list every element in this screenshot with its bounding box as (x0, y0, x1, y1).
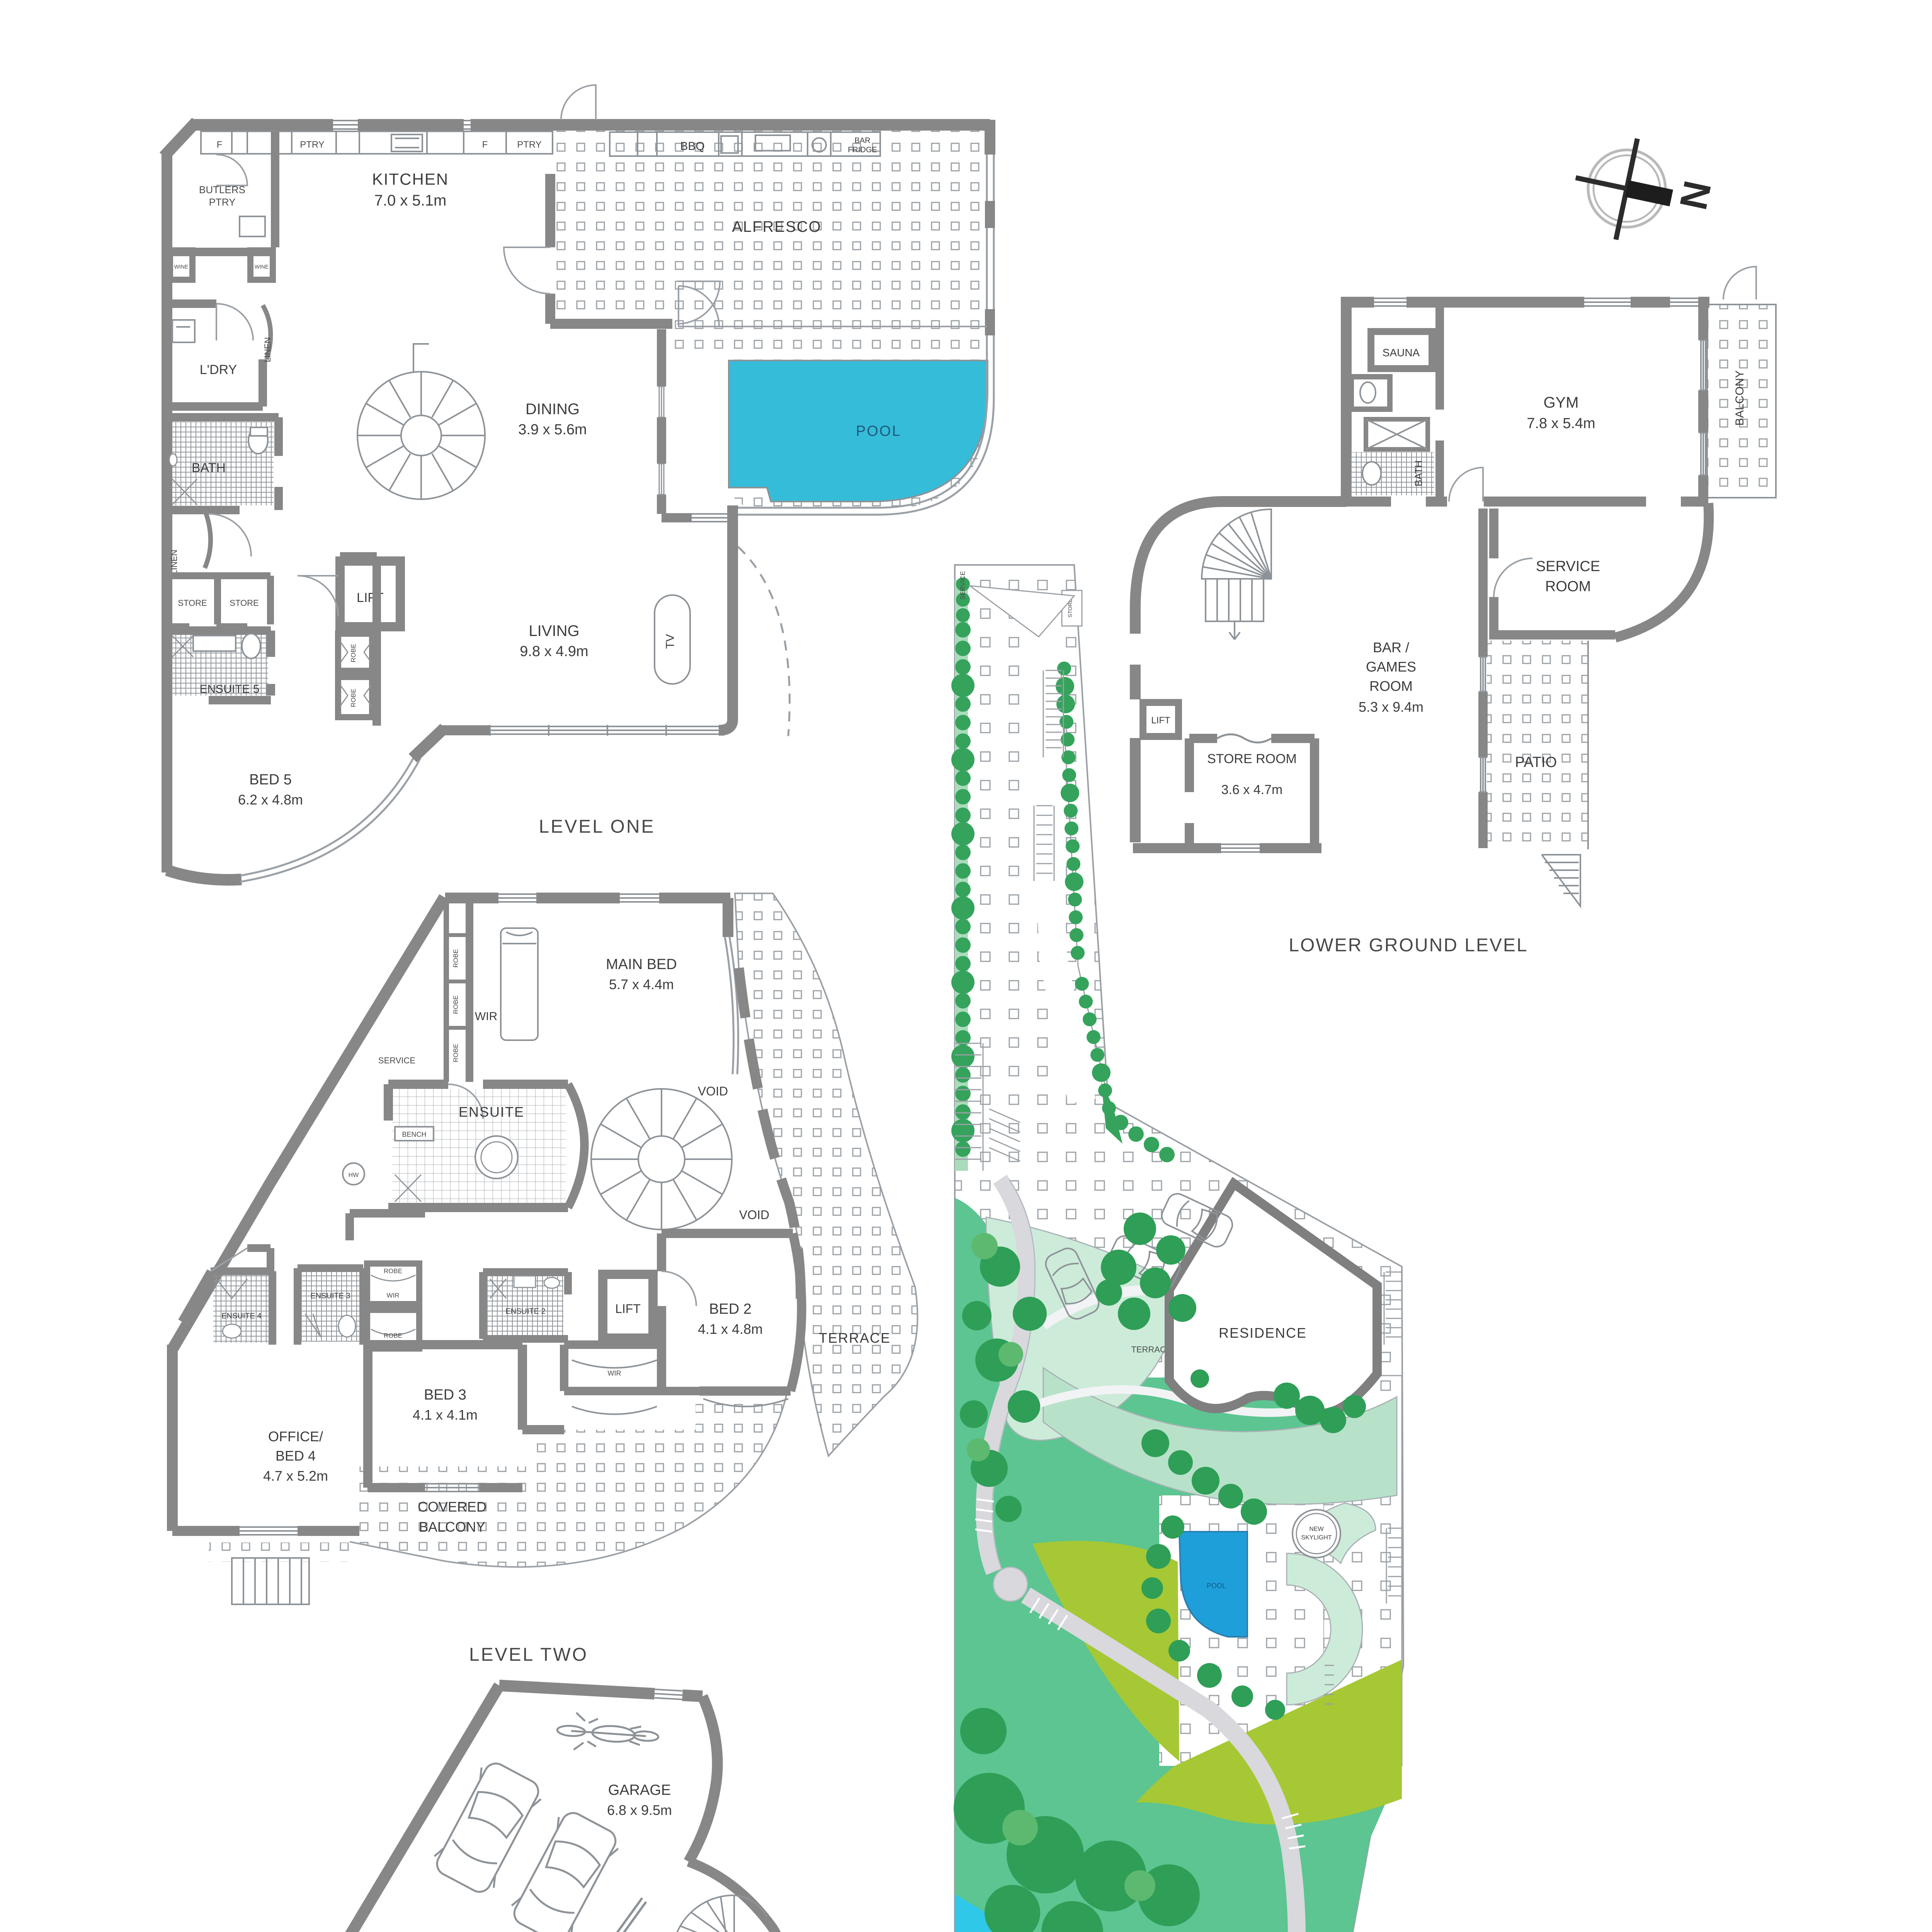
svg-text:TERRACE: TERRACE (819, 1330, 891, 1346)
svg-text:LIFT: LIFT (1151, 715, 1170, 726)
svg-text:BED 5: BED 5 (249, 772, 292, 788)
svg-text:6.8 x 9.5m: 6.8 x 9.5m (607, 1802, 672, 1818)
svg-text:STORE: STORE (178, 598, 207, 608)
svg-text:LIFT: LIFT (615, 1302, 641, 1316)
svg-text:LOWER GROUND LEVEL: LOWER GROUND LEVEL (1289, 935, 1528, 956)
svg-text:WIR: WIR (608, 1369, 621, 1377)
svg-text:BED 4: BED 4 (276, 1448, 316, 1464)
svg-text:WIR: WIR (475, 1010, 497, 1023)
svg-text:ROBE: ROBE (350, 644, 357, 662)
svg-text:6.2 x 4.8m: 6.2 x 4.8m (238, 792, 303, 808)
svg-text:BED 3: BED 3 (424, 1387, 466, 1403)
svg-text:ENSUITE: ENSUITE (459, 1104, 524, 1120)
svg-text:4.1 x 4.8m: 4.1 x 4.8m (698, 1321, 763, 1337)
svg-text:ROOM: ROOM (1369, 678, 1413, 694)
svg-text:RESIDENCE: RESIDENCE (1219, 1325, 1307, 1341)
svg-text:7.8 x 5.4m: 7.8 x 5.4m (1527, 415, 1595, 432)
svg-text:VOID: VOID (698, 1084, 728, 1098)
svg-text:ENSUITE 3: ENSUITE 3 (310, 1292, 350, 1300)
svg-text:STORE ROOM: STORE ROOM (1207, 752, 1297, 766)
svg-text:NEW: NEW (1309, 1526, 1324, 1532)
svg-text:ROBE: ROBE (384, 1267, 402, 1275)
svg-text:POOL: POOL (1207, 1582, 1226, 1590)
svg-text:KITCHEN: KITCHEN (372, 170, 449, 188)
svg-text:ENSUITE 4: ENSUITE 4 (221, 1312, 261, 1320)
svg-text:ROOM: ROOM (1545, 578, 1591, 595)
svg-text:ROBE: ROBE (350, 689, 357, 707)
svg-text:BAR: BAR (854, 136, 870, 145)
svg-text:TV: TV (664, 634, 677, 649)
svg-text:BBQ: BBQ (680, 140, 704, 153)
svg-text:SERVICE: SERVICE (959, 571, 966, 600)
svg-text:BENCH: BENCH (402, 1131, 426, 1138)
svg-text:5.7 x 4.4m: 5.7 x 4.4m (609, 976, 674, 992)
svg-text:ROBE: ROBE (452, 995, 459, 1014)
svg-text:F: F (482, 139, 488, 150)
svg-text:GAMES: GAMES (1366, 659, 1416, 675)
svg-text:ROBE: ROBE (452, 1044, 459, 1062)
svg-text:4.7 x 5.2m: 4.7 x 5.2m (263, 1468, 328, 1484)
svg-text:MAIN BED: MAIN BED (606, 956, 677, 973)
svg-text:VOID: VOID (739, 1208, 769, 1222)
svg-text:HW: HW (349, 1172, 359, 1179)
svg-text:5.3 x 9.4m: 5.3 x 9.4m (1359, 699, 1423, 715)
svg-text:LIVING: LIVING (529, 622, 579, 639)
svg-text:LEVEL ONE: LEVEL ONE (539, 816, 655, 837)
svg-text:ROBE: ROBE (384, 1332, 402, 1339)
svg-text:ENSUITE 2: ENSUITE 2 (505, 1307, 545, 1316)
svg-text:LEVEL TWO: LEVEL TWO (469, 1645, 588, 1665)
svg-text:POOL: POOL (856, 423, 901, 439)
svg-text:PTRY: PTRY (209, 196, 236, 208)
svg-text:PATIO: PATIO (1515, 754, 1557, 770)
svg-text:BED 2: BED 2 (709, 1301, 752, 1317)
svg-text:L'DRY: L'DRY (200, 362, 237, 377)
svg-text:BATH: BATH (1413, 460, 1424, 486)
svg-text:BAR /: BAR / (1373, 639, 1409, 655)
svg-text:SERVICE: SERVICE (378, 1056, 415, 1065)
svg-text:3.6 x 4.7m: 3.6 x 4.7m (1221, 782, 1283, 797)
svg-text:PTRY: PTRY (517, 139, 542, 150)
svg-text:ALFRESCO: ALFRESCO (732, 218, 821, 235)
svg-text:WIR: WIR (386, 1292, 399, 1299)
svg-text:GARAGE: GARAGE (608, 1782, 671, 1798)
svg-text:COVERED: COVERED (418, 1499, 486, 1515)
svg-text:SAUNA: SAUNA (1383, 347, 1420, 359)
svg-text:SERVICE: SERVICE (1536, 558, 1600, 575)
svg-text:ENSUITE 5: ENSUITE 5 (199, 683, 259, 696)
svg-text:OFFICE/: OFFICE/ (268, 1429, 323, 1444)
svg-text:9.8 x 4.9m: 9.8 x 4.9m (520, 643, 588, 660)
svg-text:GYM: GYM (1543, 394, 1578, 411)
svg-text:LINEN: LINEN (263, 337, 272, 362)
svg-text:ROBE: ROBE (452, 949, 459, 968)
svg-text:PTRY: PTRY (300, 139, 325, 150)
svg-text:LINEN: LINEN (169, 550, 179, 575)
svg-text:WINE: WINE (255, 264, 269, 270)
svg-text:FRIDGE: FRIDGE (848, 146, 877, 154)
svg-text:STORE: STORE (230, 598, 259, 608)
svg-text:BALCONY: BALCONY (1733, 370, 1746, 425)
svg-text:4.1 x 4.1m: 4.1 x 4.1m (413, 1407, 478, 1423)
svg-text:7.0 x 5.1m: 7.0 x 5.1m (374, 192, 447, 209)
svg-text:F: F (217, 139, 223, 150)
svg-text:BATH: BATH (192, 461, 226, 475)
svg-text:SKYLIGHT: SKYLIGHT (1301, 1534, 1332, 1541)
svg-text:BALCONY: BALCONY (419, 1519, 485, 1535)
svg-text:3.9 x 5.6m: 3.9 x 5.6m (518, 422, 587, 438)
svg-text:WINE: WINE (174, 264, 189, 270)
svg-text:DINING: DINING (526, 401, 580, 418)
